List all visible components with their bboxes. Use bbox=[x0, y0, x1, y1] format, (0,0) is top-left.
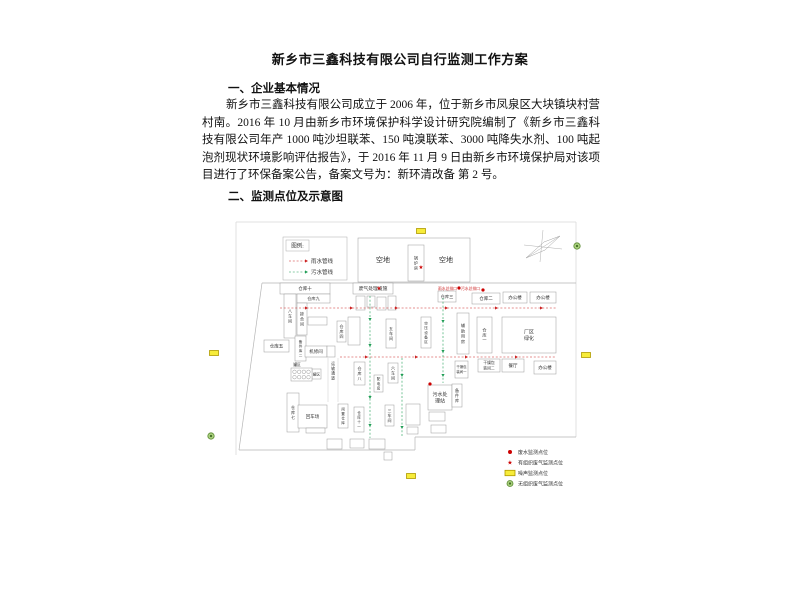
organized-gas-point-marker: ★ bbox=[377, 285, 382, 292]
building-box bbox=[429, 412, 445, 421]
building-box bbox=[306, 428, 325, 433]
map-label: 空地 bbox=[376, 255, 390, 264]
building-label: 闲 bbox=[341, 406, 345, 411]
building-label: 理站 bbox=[435, 398, 445, 405]
compass-icon bbox=[524, 245, 562, 249]
building-label: 房 bbox=[461, 338, 465, 345]
pipe-legend-label: 雨水管线 bbox=[311, 257, 334, 265]
map-label: 道 bbox=[331, 375, 335, 380]
pipeline-arrow bbox=[395, 306, 398, 309]
pipeline-arrow bbox=[368, 318, 371, 321]
building-label: 七 bbox=[291, 414, 295, 420]
building-label: 四 bbox=[340, 334, 344, 339]
building-label: 置 bbox=[341, 411, 345, 416]
building-label: 备 bbox=[424, 334, 428, 339]
map-label: 运 bbox=[331, 361, 335, 366]
building-label: 污水处 bbox=[432, 391, 447, 398]
map-label: 输 bbox=[331, 366, 335, 371]
pipeline-arrow bbox=[365, 355, 368, 358]
building-label: 餐厅 bbox=[509, 362, 518, 369]
building-label: 仓库九 bbox=[307, 295, 320, 302]
legend-unorganized-gas-core bbox=[509, 482, 511, 484]
building-label: 库 bbox=[455, 397, 459, 403]
noise-point-marker bbox=[407, 474, 416, 479]
building-label: 办公楼 bbox=[538, 364, 552, 371]
pipeline-arrow bbox=[445, 306, 448, 309]
wastewater-point-marker bbox=[481, 288, 484, 291]
building-label: 配 bbox=[377, 376, 381, 381]
building-label: 十 bbox=[357, 419, 361, 424]
building-label: 间 bbox=[288, 317, 292, 323]
map-label: 空地 bbox=[439, 255, 453, 264]
building-box bbox=[350, 439, 364, 448]
building-label: 机修间 bbox=[309, 348, 323, 355]
wastewater-point-marker bbox=[457, 286, 460, 289]
outfall-label: 雨水总排口 bbox=[438, 286, 457, 291]
pipeline-arrow bbox=[368, 344, 371, 347]
legend-point-label: 噪声监测点位 bbox=[518, 470, 548, 477]
building-label: 电 bbox=[377, 381, 381, 386]
unorganized-gas-point-core bbox=[210, 435, 212, 437]
pipeline-arrow bbox=[441, 350, 444, 353]
pipeline-arrow bbox=[515, 355, 518, 358]
pipeline-arrow bbox=[400, 374, 403, 377]
building-box bbox=[406, 404, 420, 425]
building-box bbox=[348, 317, 360, 345]
building-label: 备 bbox=[299, 339, 303, 344]
building-label: 二 bbox=[299, 354, 303, 358]
legend-noise-symbol bbox=[505, 470, 515, 475]
building-label: 干燥包 bbox=[483, 360, 495, 365]
monitoring-site-diagram: 锅炉房仓库十仓库九八车间掺合间备件库二仓库五机修间罐区仓库七回车场废气处理设施仓… bbox=[195, 215, 605, 500]
building-box bbox=[384, 452, 392, 460]
page-title: 新乡市三鑫科技有限公司自行监测工作方案 bbox=[200, 49, 600, 68]
building-label: 房 bbox=[377, 385, 381, 390]
building-label: 区 bbox=[424, 340, 428, 344]
compass-icon bbox=[540, 230, 543, 262]
legend-point-label: 废水监测点位 bbox=[518, 449, 548, 456]
organized-gas-point-marker: ★ bbox=[419, 264, 424, 271]
pipe-legend-label: 污水管线 bbox=[311, 268, 334, 276]
building-label: 绿化 bbox=[524, 335, 534, 342]
building-label: 间 bbox=[388, 417, 392, 423]
legend-organized-gas-symbol: ★ bbox=[507, 460, 512, 467]
building-box bbox=[407, 427, 418, 434]
building-label: 压 bbox=[424, 326, 428, 330]
legend-wastewater-symbol bbox=[508, 450, 512, 454]
building-label: 库 bbox=[357, 414, 361, 419]
building-label: 库 bbox=[341, 420, 345, 425]
building-label: 间 bbox=[300, 320, 304, 326]
building-box bbox=[308, 317, 327, 325]
map-label: 通 bbox=[331, 371, 335, 376]
wastewater-point-marker bbox=[428, 382, 431, 385]
noise-point-marker bbox=[417, 229, 426, 234]
building-label: 罐区 bbox=[313, 371, 321, 376]
pipeline-arrow bbox=[495, 306, 498, 309]
section1-heading: 一、企业基本情况 bbox=[228, 80, 320, 96]
factory-outline-line bbox=[239, 283, 262, 450]
unorganized-gas-point-core bbox=[576, 245, 578, 247]
pipe-legend-title: 图例: bbox=[291, 242, 304, 250]
building-label: 房 bbox=[414, 264, 418, 270]
intro-paragraph: 新乡市三鑫科技有限公司成立于 2006 年，位于新乡市凤泉区大块镇块村营村南。2… bbox=[202, 97, 600, 185]
pipeline-arrow bbox=[368, 396, 371, 399]
noise-point-marker bbox=[582, 353, 591, 358]
building-box bbox=[369, 439, 385, 449]
building-label: 仓库五 bbox=[270, 343, 284, 350]
section2-heading: 二、监测点位及示意图 bbox=[228, 188, 343, 204]
pipeline-arrow bbox=[400, 426, 403, 429]
pipeline-arrow bbox=[441, 374, 444, 377]
pipeline-arrow bbox=[441, 320, 444, 323]
building-label: 回车场 bbox=[306, 413, 320, 420]
building-box bbox=[367, 296, 375, 307]
building-label: 废气处理设施 bbox=[359, 285, 388, 292]
building-label: 空 bbox=[424, 321, 428, 326]
pipeline-arrow bbox=[465, 355, 468, 358]
building-label: 干燥包 bbox=[456, 364, 467, 369]
building-label: 仓库三 bbox=[441, 293, 454, 300]
noise-point-marker bbox=[210, 351, 219, 356]
legend-point-label: 有组织废气监测点位 bbox=[518, 459, 563, 466]
outfall-label: 污水总排口 bbox=[461, 286, 480, 291]
building-label: 装间一 bbox=[456, 369, 467, 374]
building-box bbox=[431, 425, 446, 433]
pipeline-arrow bbox=[368, 424, 371, 427]
building-label: 仓库二 bbox=[479, 295, 493, 302]
building-label: 件 bbox=[299, 343, 303, 348]
building-label: 仓 bbox=[357, 410, 361, 415]
building-box bbox=[327, 439, 342, 449]
building-label: 办公楼 bbox=[536, 294, 550, 301]
building-label: 仓库十 bbox=[298, 285, 312, 292]
pipeline-arrow bbox=[350, 306, 353, 309]
building-label: 间 bbox=[389, 335, 393, 341]
document-page: 新乡市三鑫科技有限公司自行监测工作方案 一、企业基本情况 新乡市三鑫科技有限公司… bbox=[0, 0, 800, 600]
building-label: 库 bbox=[299, 348, 303, 353]
building-label: 办公楼 bbox=[508, 294, 522, 301]
legend-point-label: 无组织废气监测点位 bbox=[518, 480, 563, 487]
building-label: 一 bbox=[482, 338, 486, 343]
pipeline-arrow bbox=[540, 306, 543, 309]
building-label: 间 bbox=[391, 374, 395, 380]
building-label: 八 bbox=[358, 376, 362, 381]
building-box bbox=[377, 297, 386, 310]
building-label: 一 bbox=[357, 425, 361, 429]
building-label: 仓 bbox=[341, 416, 345, 421]
map-label: 罐区 bbox=[293, 362, 301, 367]
building-label: 设 bbox=[424, 330, 428, 335]
building-box bbox=[327, 346, 335, 357]
pipeline-arrow bbox=[415, 355, 418, 358]
building-label: 厂区 bbox=[524, 330, 534, 336]
building-label: 装间二 bbox=[483, 365, 495, 370]
